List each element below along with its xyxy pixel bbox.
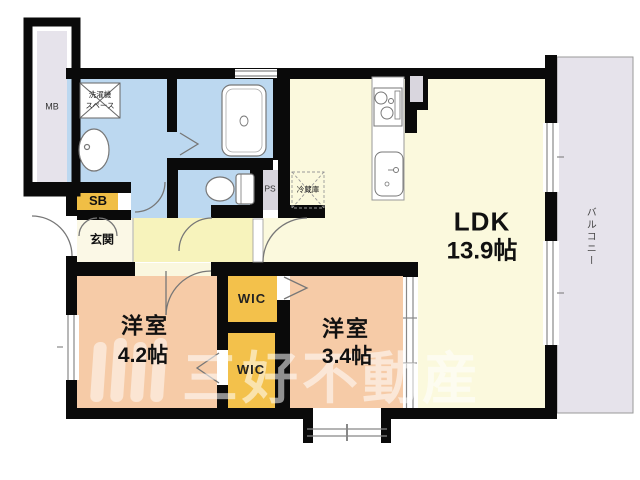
label-wic-lower: WIC <box>237 363 265 377</box>
label-ldk-name: LDK <box>454 208 510 235</box>
label-entrance: 玄関 <box>90 234 114 247</box>
washbasin <box>79 129 109 171</box>
label-wic-upper: WIC <box>238 292 266 306</box>
label-washer-space-2: スペース <box>85 102 114 110</box>
label-balcony: バルコニー <box>584 207 595 267</box>
label-bedroom-left-name: 洋室 <box>121 314 169 337</box>
label-bedroom-right-size: 3.4帖 <box>322 346 372 368</box>
kitchen-duct <box>410 76 423 102</box>
label-pipe-space: PS <box>264 185 275 194</box>
bathtub <box>222 85 266 156</box>
stove <box>374 88 402 126</box>
label-shoe-box: SB <box>89 194 107 208</box>
label-ldk-size: 13.9帖 <box>447 238 518 263</box>
floorplan-page: 三好不動産 MB 洗濯機 スペース SB 玄関 PS 冷蔵庫 LDK 13.9帖… <box>0 0 640 480</box>
label-washer-space-1: 洗濯機 <box>89 91 112 99</box>
label-bedroom-right-name: 洋室 <box>322 317 370 340</box>
label-refrigerator: 冷蔵庫 <box>297 186 320 194</box>
label-bedroom-left-size: 4.2帖 <box>118 345 168 367</box>
kitchen-sink <box>375 152 403 196</box>
label-meter-box: MB <box>45 102 59 111</box>
